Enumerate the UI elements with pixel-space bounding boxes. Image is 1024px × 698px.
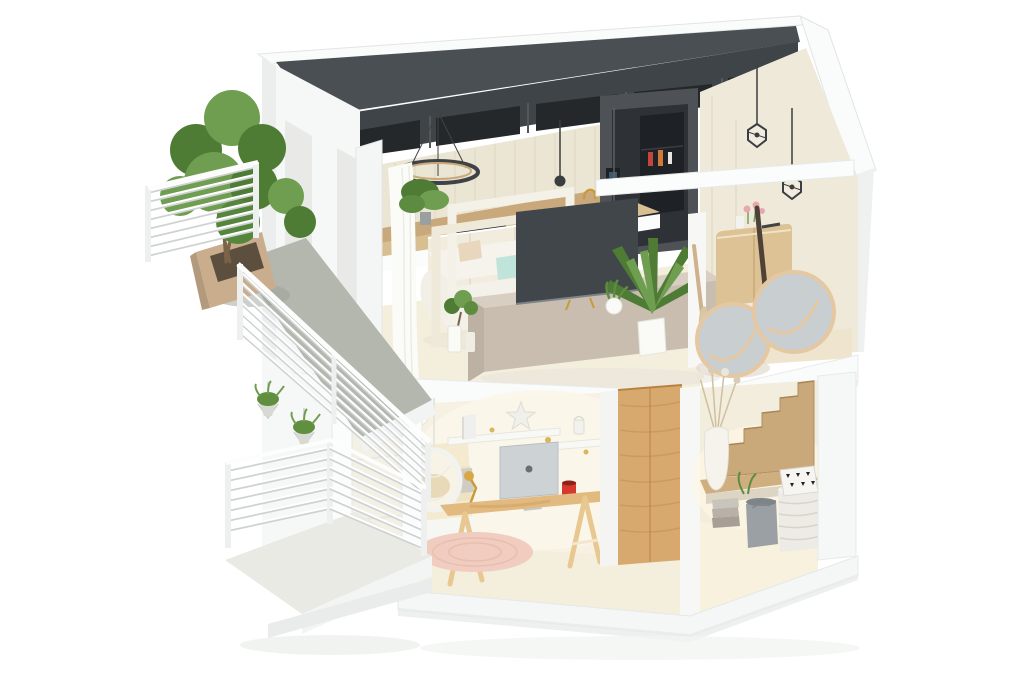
decor-vase (736, 216, 744, 228)
ground-shadow-main (420, 636, 860, 660)
ground-shadow-left (240, 635, 420, 655)
rug (417, 532, 533, 572)
fridge-bottle-white (668, 152, 672, 164)
basket-white (778, 466, 820, 552)
right-wall-lower (818, 372, 856, 560)
towel-stack (712, 498, 740, 528)
bookend (462, 414, 476, 440)
basket-gray (746, 498, 778, 548)
bonsai-vase (448, 326, 461, 352)
fern-pot (420, 212, 431, 225)
wardrobe (600, 385, 682, 567)
corner-post-lower (680, 386, 700, 620)
palm-pot (638, 318, 666, 356)
wardrobe-side (600, 390, 618, 567)
dollhouse-render (0, 0, 1024, 698)
fridge-bottle-red (648, 152, 653, 166)
mirror-large (754, 272, 834, 352)
apple-logo (526, 466, 533, 473)
fridge-bottle-orange (658, 150, 663, 166)
small-vase (466, 332, 475, 352)
bw-pillow (780, 466, 818, 496)
